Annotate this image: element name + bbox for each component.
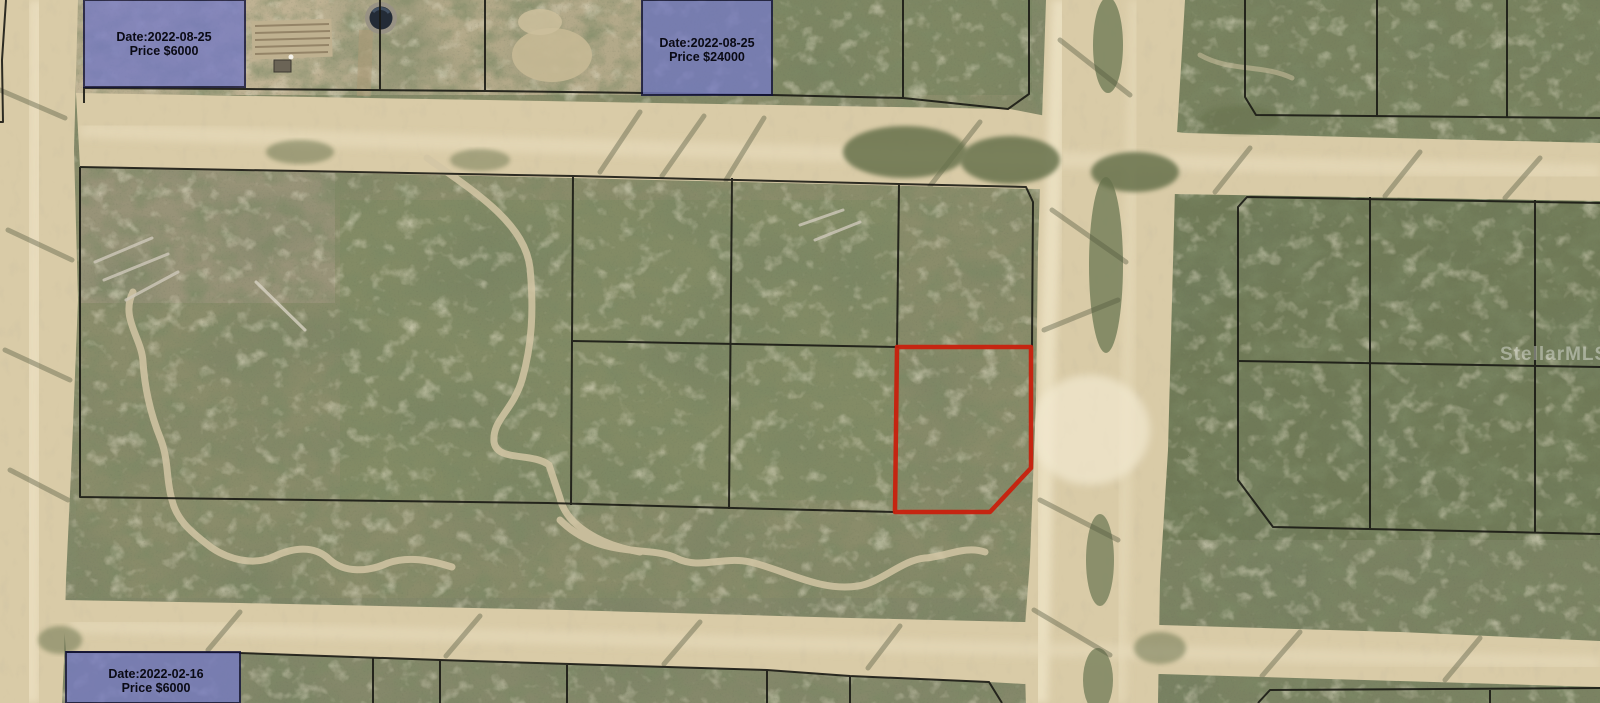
sold-parcel-2-date: Date:2022-08-25 (659, 36, 754, 50)
stellar-mls-watermark: StellarMLS (1500, 344, 1600, 365)
map-canvas: Date:2022-08-25 Price $6000 Date:2022-08… (0, 0, 1600, 703)
sold-parcel-1[interactable]: Date:2022-08-25 Price $6000 (84, 0, 245, 87)
sold-parcel-3[interactable]: Date:2022-02-16 Price $6000 (66, 652, 240, 703)
sold-parcel-3-date: Date:2022-02-16 (108, 667, 203, 681)
sold-parcel-2[interactable]: Date:2022-08-25 Price $24000 (642, 0, 772, 95)
sold-parcel-1-date: Date:2022-08-25 (116, 30, 211, 44)
sold-parcel-1-price: Price $6000 (130, 44, 199, 58)
sold-parcel-2-price: Price $24000 (669, 50, 745, 64)
aerial-parcel-map: Date:2022-08-25 Price $6000 Date:2022-08… (0, 0, 1600, 703)
sold-parcel-3-price: Price $6000 (122, 681, 191, 695)
small-structure (274, 60, 291, 72)
